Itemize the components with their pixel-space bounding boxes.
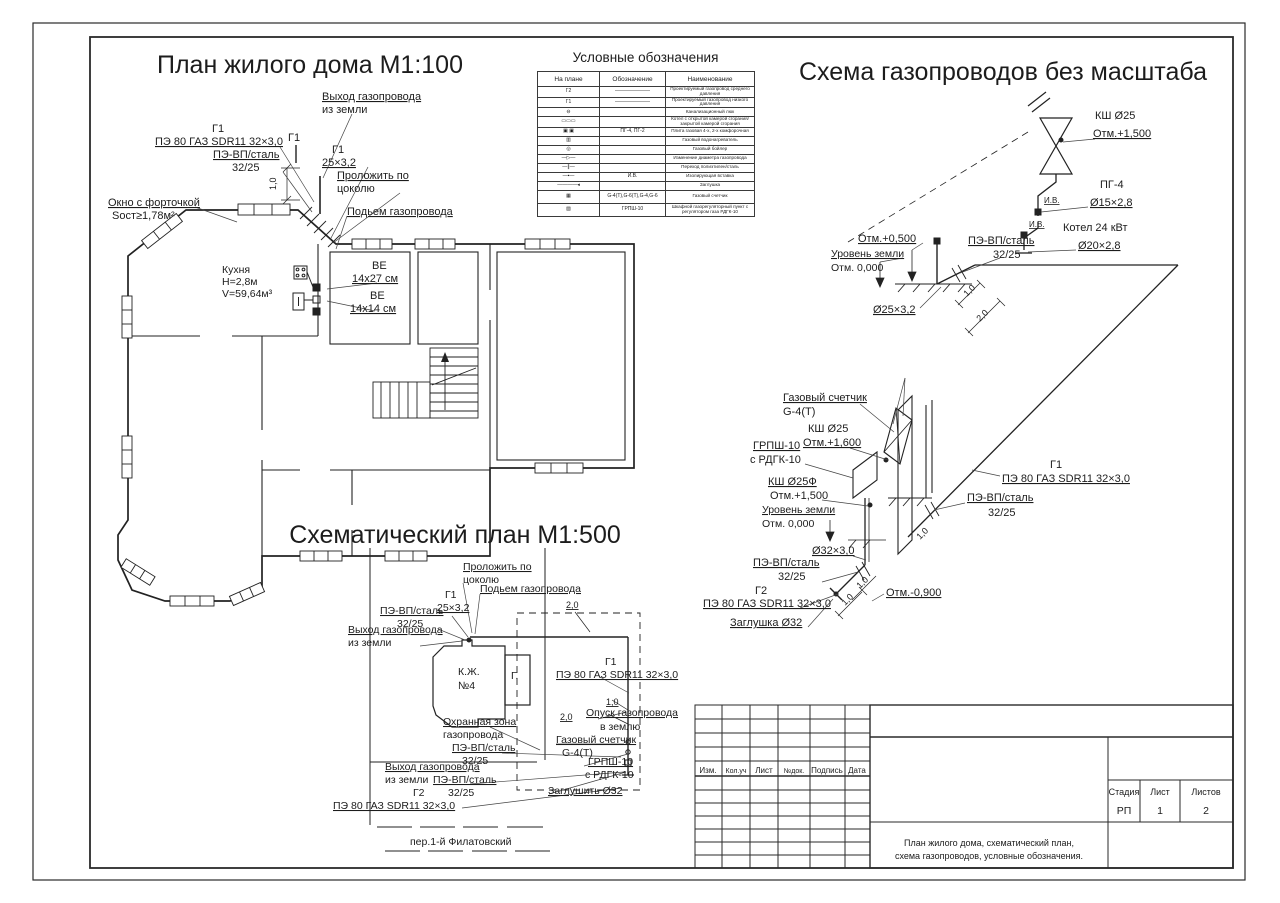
lbl-d25: Ø25×3,2 — [873, 304, 916, 316]
sl-lay1: Проложить по — [463, 561, 532, 573]
lbl-pevp2: ПЭ-ВП/сталь — [967, 492, 1034, 504]
lbl-dim10c: 1,0 — [839, 591, 855, 607]
sl-drop1: Опуск газопровода — [586, 707, 678, 719]
sl-house2: №4 — [458, 680, 475, 692]
lbl-pevp2-size: 32/25 — [988, 507, 1016, 519]
legend-header: Обозначение — [600, 72, 666, 87]
legend-cell: ⊖ — [538, 108, 600, 117]
sl-g1b: Г1 — [605, 656, 617, 668]
plan-labels: Выход газопровода из земли Г1 ПЭ 80 ГАЗ … — [108, 91, 454, 315]
sl-house1: К.Ж. — [458, 666, 480, 678]
tb-col-list: Лист — [755, 766, 773, 775]
lbl-ksh25f: КШ Ø25Ф — [768, 476, 817, 488]
label-exit1: Выход газопровода — [322, 91, 422, 103]
tb-doc-title2: схема газопроводов, условные обозначения… — [895, 851, 1083, 861]
lbl-meter2: G-4(Т) — [783, 406, 815, 418]
legend-cell: —▷— — [538, 154, 600, 163]
label-lay2: цоколю — [337, 183, 375, 195]
lbl-otm1500: Отм.+1,500 — [1093, 128, 1151, 140]
legend-cell — [600, 145, 666, 154]
label-ve2-size: 14х14 см — [350, 303, 396, 315]
lbl-iv1: И.В. — [1044, 196, 1060, 205]
sl-dim20a: 2,0 — [566, 600, 579, 610]
label-g1b: Г1 — [288, 132, 300, 144]
sl-exit2: из земли — [348, 637, 391, 649]
lbl-boiler-size: Ø20×2,8 — [1078, 240, 1121, 252]
sl-pevp2: ПЭ-ВП/сталь — [452, 742, 516, 754]
legend-cell: Газовый счетчик — [666, 190, 755, 203]
tb-col-koluch: Кол.уч — [726, 768, 747, 775]
lbl-plug: Заглушка Ø32 — [730, 617, 802, 629]
legend-cell: Газовый водонагреватель — [666, 136, 755, 145]
lbl-iv2: И.В. — [1029, 220, 1045, 229]
lbl-grpsh2: с РДГК-10 — [750, 454, 801, 466]
label-ve2: ВЕ — [370, 290, 385, 302]
splan-title: Схематический план М1:500 — [289, 521, 621, 549]
sl-pevp: ПЭ-ВП/сталь — [380, 605, 444, 617]
legend-title: Условные обозначения — [537, 50, 754, 65]
gas-scheme: Схема газопроводов без масштаба — [703, 58, 1207, 629]
legend-cell: Шкафной газорегуляторный пункт с регулят… — [666, 203, 755, 216]
legend-cell: ГРПШ-10 — [600, 203, 666, 216]
tb-sheet-label: Лист — [1150, 787, 1170, 797]
legend-cell: ▭▭▭ — [538, 117, 600, 128]
label-dim10: 1,0 — [268, 177, 278, 190]
lbl-otm1500b: Отм.+1,500 — [770, 490, 828, 502]
lbl-g2: Г2 — [755, 585, 767, 597]
tb-col-podpis: Подпись — [811, 766, 843, 775]
kitchen-appliances — [293, 266, 320, 315]
label-ve1: ВЕ — [372, 260, 387, 272]
lbl-pg4-size: Ø15×2,8 — [1090, 197, 1133, 209]
sl-rise: Подьем газопровода — [480, 583, 581, 595]
legend-table: На плане Обозначение Наименование Г2————… — [537, 71, 755, 217]
legend-cell: Канализационный люк — [666, 108, 755, 117]
legend-header: На плане — [538, 72, 600, 87]
sl-street: пер.1-й Филатовский — [410, 836, 512, 848]
site-plan: Схематический план М1:500 — [289, 521, 678, 851]
sl-dim20b: 2,0 — [560, 712, 573, 722]
sl-dim10: 1,0 — [606, 697, 619, 707]
sl-exit3: Выход газопровода — [385, 761, 480, 773]
label-g1c: Г1 — [332, 144, 344, 156]
lbl-ksh25b: КШ Ø25 — [808, 423, 848, 435]
legend-cell: ◎ — [538, 145, 600, 154]
tb-doc-title1: План жилого дома, схематический план, — [904, 838, 1074, 848]
sl-grpsh2: с РДГК-10 — [585, 769, 634, 781]
sl-zone1: Охранная зона — [443, 716, 516, 728]
tb-sheets-label: Листов — [1191, 787, 1220, 797]
legend-cell: Проектируемый газопровод низкого давлени… — [666, 97, 755, 108]
legend-cell: Плита газовая 4-х, 2-х комфорочная — [666, 127, 755, 136]
legend-cell — [600, 181, 666, 190]
legend-cell: ПГ-4, ПГ-2 — [600, 127, 666, 136]
legend-cell: ————◂ — [538, 181, 600, 190]
legend-cell: Газовый бойлер — [666, 145, 755, 154]
legend-cell: Заглушка — [666, 181, 755, 190]
sl-pevp3: ПЭ-ВП/сталь — [433, 774, 497, 786]
tb-col-ndok: №док. — [784, 768, 805, 775]
label-pevp: ПЭ-ВП/сталь — [213, 149, 280, 161]
label-pe80: ПЭ 80 ГАЗ SDR11 32×3,0 — [155, 136, 283, 148]
tb-sheets-value: 2 — [1203, 805, 1209, 817]
lbl-otm0500: Отм.+0,500 — [858, 233, 916, 245]
label-d25: 25×3,2 — [322, 157, 356, 169]
legend-cell: ▨ — [538, 203, 600, 216]
scheme-title: Схема газопроводов без масштаба — [799, 58, 1207, 86]
lbl-otm0a: Отм. 0,000 — [831, 262, 883, 274]
lbl-pe80: ПЭ 80 ГАЗ SDR11 32×3,0 — [1002, 473, 1130, 485]
lbl-dim20a: 2,0 — [974, 307, 990, 323]
sl-pe80: ПЭ 80 ГАЗ SDR11 32×3,0 — [556, 669, 678, 681]
plan-title: План жилого дома М1:100 — [157, 51, 463, 79]
legend-cell: G-4(Т),G-6(Т),G-4,G-6 — [600, 190, 666, 203]
legend-cell: ——————— — [600, 97, 666, 108]
sl-exit4: из земли — [385, 774, 428, 786]
legend-cell — [600, 163, 666, 172]
tb-stage-label: Стадия — [1109, 787, 1140, 797]
label-kitchen1: Кухня — [222, 264, 250, 276]
legend-cell: Котел с открытой камерой сгорания/закрыт… — [666, 117, 755, 128]
lbl-otm1600: Отм.+1,600 — [803, 437, 861, 449]
label-kitchen3: V=59,64м³ — [222, 288, 273, 300]
lbl-ksh25: КШ Ø25 — [1095, 110, 1135, 122]
legend-cell: Г2 — [538, 87, 600, 98]
tb-stage-value: РП — [1117, 805, 1132, 817]
legend-cell: Изменение диаметра газопровода — [666, 154, 755, 163]
label-exit2: из земли — [322, 104, 367, 116]
tb-sheet-value: 1 — [1157, 805, 1163, 817]
lbl-grpsh: ГРПШ-10 — [753, 440, 800, 452]
sl-drop2: в землю — [600, 721, 640, 733]
lbl-otm-m0900: Отм.-0,900 — [886, 587, 941, 599]
sl-meter1: Газовый счетчик — [556, 734, 636, 746]
lbl-ground2: Уровень земли — [762, 504, 835, 516]
legend: Условные обозначения На плане Обозначени… — [537, 50, 754, 217]
tb-col-data: Дата — [848, 766, 866, 775]
drawing-sheet: План жилого дома М1:100 — [0, 0, 1280, 903]
legend-cell: ▥ — [538, 136, 600, 145]
legend-header: Наименование — [666, 72, 755, 87]
lbl-pevp3: ПЭ-ВП/сталь — [753, 557, 820, 569]
sl-pevp3-size: 32/25 — [448, 787, 474, 799]
sl-exit1: Выход газопровода — [348, 624, 443, 636]
lbl-pevp-u: ПЭ-ВП/сталь — [968, 235, 1035, 247]
lbl-pevp3-size: 32/25 — [778, 571, 806, 583]
scheme-pipes — [826, 92, 1178, 619]
legend-cell: ▣ ▣ — [538, 127, 600, 136]
lbl-pg4: ПГ-4 — [1100, 179, 1124, 191]
lbl-otm0b: Отм. 0,000 — [762, 518, 814, 530]
label-lay1: Проложить по — [337, 170, 409, 182]
legend-cell: Г1 — [538, 97, 600, 108]
sl-garage: Г. — [511, 670, 518, 682]
lbl-dim10d: 1,0 — [854, 574, 870, 590]
lbl-pevp-size-u: 32/25 — [993, 249, 1021, 261]
legend-cell: —▪— — [538, 172, 600, 181]
label-window2: Sост≥1,78м² — [112, 210, 175, 222]
lbl-d32: Ø32×3,0 — [812, 545, 855, 557]
legend-cell — [600, 108, 666, 117]
lbl-pe80b: ПЭ 80 ГАЗ SDR11 32×3,0 — [703, 598, 831, 610]
legend-cell: Изолирующая вставка — [666, 172, 755, 181]
label-ve1-size: 14х27 см — [352, 273, 398, 285]
legend-cell — [600, 154, 666, 163]
label-g1: Г1 — [212, 123, 224, 135]
lbl-g1: Г1 — [1050, 459, 1062, 471]
title-block: Изм. Кол.уч Лист №док. Подпись Дата Стад… — [695, 705, 1233, 868]
legend-cell — [600, 136, 666, 145]
legend-cell — [600, 117, 666, 128]
label-pevp-size: 32/25 — [232, 162, 260, 174]
stairs — [373, 348, 478, 418]
legend-cell: И.В. — [600, 172, 666, 181]
sl-grpsh: ГРПШ-10 — [588, 756, 633, 768]
sl-pe80b: ПЭ 80 ГАЗ SDR11 32×3,0 — [333, 800, 455, 812]
legend-cell: ——————— — [600, 87, 666, 98]
lbl-ground1: Уровень земли — [831, 248, 904, 260]
lbl-boiler: Котел 24 кВт — [1063, 222, 1128, 234]
label-rise: Подьем газопровода — [347, 206, 454, 218]
label-kitchen2: Н=2,8м — [222, 276, 258, 288]
sl-g1a: Г1 — [445, 589, 457, 601]
scheme-labels: КШ Ø25 Отм.+1,500 ПГ-4 Ø15×2,8 И.В. И.В.… — [703, 110, 1151, 629]
legend-cell: Переход полиэтилен/сталь — [666, 163, 755, 172]
legend-cell: ▦ — [538, 190, 600, 203]
sl-plug: Заглушить Ø32 — [548, 785, 623, 797]
legend-cell: —∥— — [538, 163, 600, 172]
tb-col-izm: Изм. — [699, 766, 716, 775]
sl-g2: Г2 — [413, 787, 425, 799]
lbl-meter1: Газовый счетчик — [783, 392, 867, 404]
sl-zone2: газопровода — [443, 729, 503, 741]
legend-cell: Проектируемый газопровод среднего давлен… — [666, 87, 755, 98]
label-window1: Окно с форточкой — [108, 197, 200, 209]
